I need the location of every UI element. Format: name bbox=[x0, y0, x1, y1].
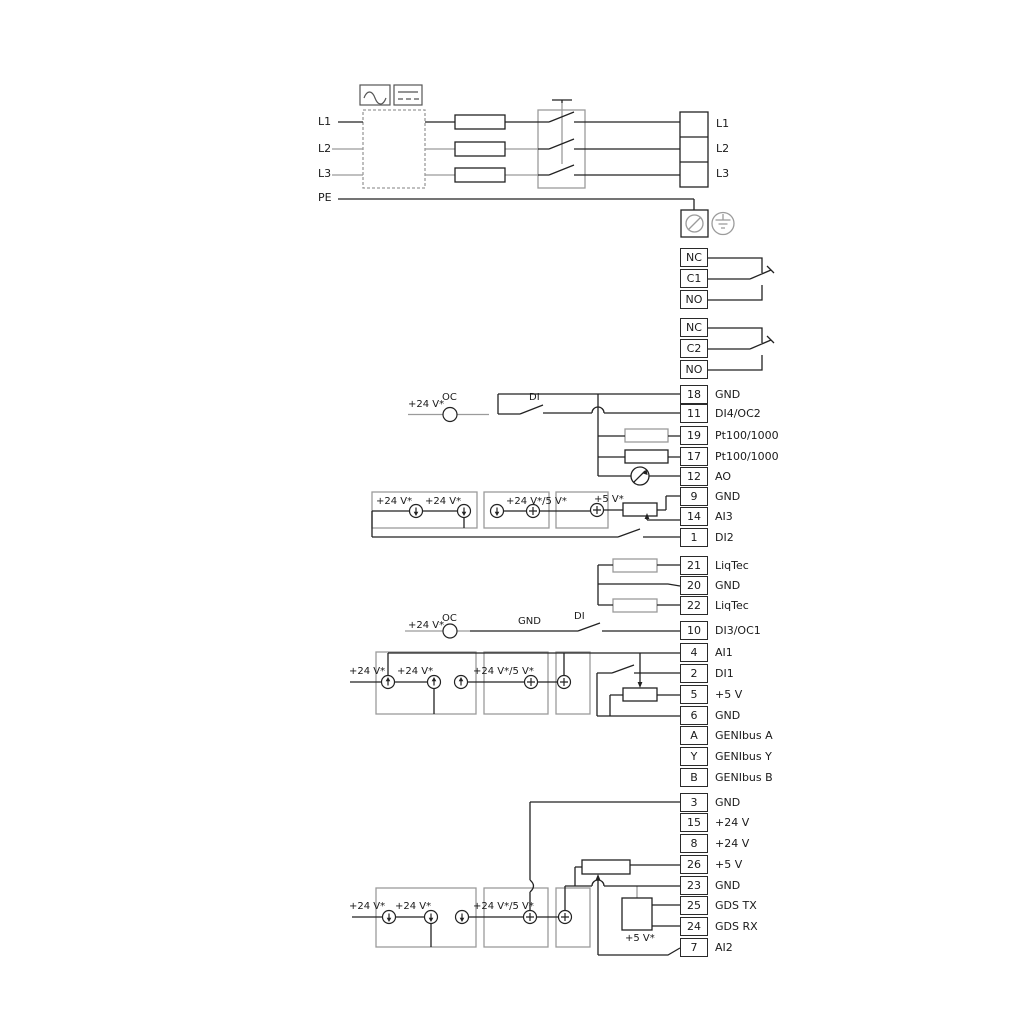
motor-label-l3: L3 bbox=[716, 167, 729, 180]
terminal-8-label: +24 V bbox=[715, 834, 749, 853]
gds-sensor-box bbox=[622, 898, 652, 930]
terminal-20: 20 bbox=[680, 576, 708, 595]
mains-label-l3: L3 bbox=[318, 167, 331, 180]
terminal-21-label: LiqTec bbox=[715, 556, 749, 575]
terminal-2-label: DI1 bbox=[715, 664, 734, 683]
terminal-10: 10 bbox=[680, 621, 708, 640]
terminal-10-label: DI3/OC1 bbox=[715, 621, 761, 640]
relay2-nc: NC bbox=[680, 318, 708, 337]
label-plus5v: +5 V* bbox=[594, 494, 624, 505]
terminal-15: 15 bbox=[680, 813, 708, 832]
label-plus24v: +24 V* bbox=[425, 496, 461, 507]
terminal-1-label: DI2 bbox=[715, 528, 734, 547]
label-plus24v: +24 V* bbox=[349, 666, 385, 677]
label-plus24v: +24 V* bbox=[408, 399, 444, 410]
motor-label-l1: L1 bbox=[716, 117, 729, 130]
relay1-c1: C1 bbox=[680, 269, 708, 288]
terminal-12: 12 bbox=[680, 467, 708, 486]
fuse-l1 bbox=[455, 115, 505, 129]
ai1-potentiometer bbox=[623, 688, 657, 701]
terminal-11-label: DI4/OC2 bbox=[715, 404, 761, 423]
mains-label-l2: L2 bbox=[318, 142, 331, 155]
label-plus24v: +24 V* bbox=[408, 620, 444, 631]
label-plus24v: +24 V* bbox=[349, 901, 385, 912]
terminal-17-label: Pt100/1000 bbox=[715, 447, 779, 466]
terminal-25-label: GDS TX bbox=[715, 896, 757, 915]
ai2-potentiometer bbox=[582, 860, 630, 874]
terminal-9: 9 bbox=[680, 487, 708, 506]
terminal-2: 2 bbox=[680, 664, 708, 683]
terminal-5: 5 bbox=[680, 685, 708, 704]
terminal-7: 7 bbox=[680, 938, 708, 957]
label-di: DI bbox=[574, 611, 585, 622]
terminal-4: 4 bbox=[680, 643, 708, 662]
terminal-1: 1 bbox=[680, 528, 708, 547]
relay1-no: NO bbox=[680, 290, 708, 309]
terminal-25: 25 bbox=[680, 896, 708, 915]
wiper-arrow bbox=[638, 682, 643, 688]
terminal-12-label: AO bbox=[715, 467, 731, 486]
emc-filter-box bbox=[363, 110, 425, 188]
open-collector-icon bbox=[443, 624, 457, 638]
motor-label-l2: L2 bbox=[716, 142, 729, 155]
terminal-14: 14 bbox=[680, 507, 708, 526]
diagram-wires bbox=[0, 0, 1024, 1024]
terminal-y-label: GENIbus Y bbox=[715, 747, 772, 766]
relay1-nc: NC bbox=[680, 248, 708, 267]
terminal-5-label: +5 V bbox=[715, 685, 742, 704]
fuse-l3 bbox=[455, 168, 505, 182]
ai3-potentiometer bbox=[623, 503, 657, 516]
terminal-17: 17 bbox=[680, 447, 708, 466]
gray-wires bbox=[332, 103, 734, 947]
terminal-a: A bbox=[680, 726, 708, 745]
terminal-23-label: GND bbox=[715, 876, 740, 895]
mains-terminal-block bbox=[680, 112, 708, 187]
terminal-a-label: GENIbus A bbox=[715, 726, 773, 745]
terminal-9-label: GND bbox=[715, 487, 740, 506]
mains-label-pe: PE bbox=[318, 191, 332, 204]
terminal-7-label: AI2 bbox=[715, 938, 733, 957]
wiper-arrow bbox=[596, 874, 601, 880]
wiring-diagram: L1 L2 L3 PE L1 L2 L3 NC C1 NO NC C2 NO 1… bbox=[0, 0, 1024, 1024]
label-plus24v: +24 V* bbox=[376, 496, 412, 507]
terminal-22-label: LiqTec bbox=[715, 596, 749, 615]
fuse-l2 bbox=[455, 142, 505, 156]
label-plus5v: +5 V* bbox=[625, 933, 655, 944]
terminal-15-label: +24 V bbox=[715, 813, 749, 832]
terminal-3-label: GND bbox=[715, 793, 740, 812]
label-plus24v: +24 V* bbox=[397, 666, 433, 677]
terminal-b-label: GENIbus B bbox=[715, 768, 773, 787]
label-di: DI bbox=[529, 392, 540, 403]
terminal-18: 18 bbox=[680, 385, 708, 404]
terminal-20-label: GND bbox=[715, 576, 740, 595]
current-source-down-icon bbox=[383, 911, 469, 924]
relay2-no: NO bbox=[680, 360, 708, 379]
terminal-23: 23 bbox=[680, 876, 708, 895]
terminal-24-label: GDS RX bbox=[715, 917, 758, 936]
terminal-14-label: AI3 bbox=[715, 507, 733, 526]
label-plus24v-5v: +24 V*/5 V* bbox=[506, 496, 567, 507]
terminal-b: B bbox=[680, 768, 708, 787]
terminal-6: 6 bbox=[680, 706, 708, 725]
relay2-c2: C2 bbox=[680, 339, 708, 358]
terminal-26: 26 bbox=[680, 855, 708, 874]
dc-symbol-box bbox=[394, 85, 422, 105]
terminal-26-label: +5 V bbox=[715, 855, 742, 874]
terminal-21: 21 bbox=[680, 556, 708, 575]
ac-symbol-box bbox=[360, 85, 390, 105]
terminal-22: 22 bbox=[680, 596, 708, 615]
label-plus24v: +24 V* bbox=[395, 901, 431, 912]
label-oc: OC bbox=[442, 613, 457, 624]
terminal-4-label: AI1 bbox=[715, 643, 733, 662]
terminal-19: 19 bbox=[680, 426, 708, 445]
terminal-18-label: GND bbox=[715, 385, 740, 404]
terminal-19-label: Pt100/1000 bbox=[715, 426, 779, 445]
terminal-6-label: GND bbox=[715, 706, 740, 725]
label-gnd: GND bbox=[518, 616, 541, 627]
label-plus24v-5v: +24 V*/5 V* bbox=[473, 666, 534, 677]
mains-label-l1: L1 bbox=[318, 115, 331, 128]
terminal-y: Y bbox=[680, 747, 708, 766]
terminal-8: 8 bbox=[680, 834, 708, 853]
terminal-11: 11 bbox=[680, 404, 708, 423]
label-plus24v-5v: +24 V*/5 V* bbox=[473, 901, 534, 912]
label-oc: OC bbox=[442, 392, 457, 403]
open-collector-icon bbox=[443, 408, 457, 422]
terminal-24: 24 bbox=[680, 917, 708, 936]
terminal-3: 3 bbox=[680, 793, 708, 812]
